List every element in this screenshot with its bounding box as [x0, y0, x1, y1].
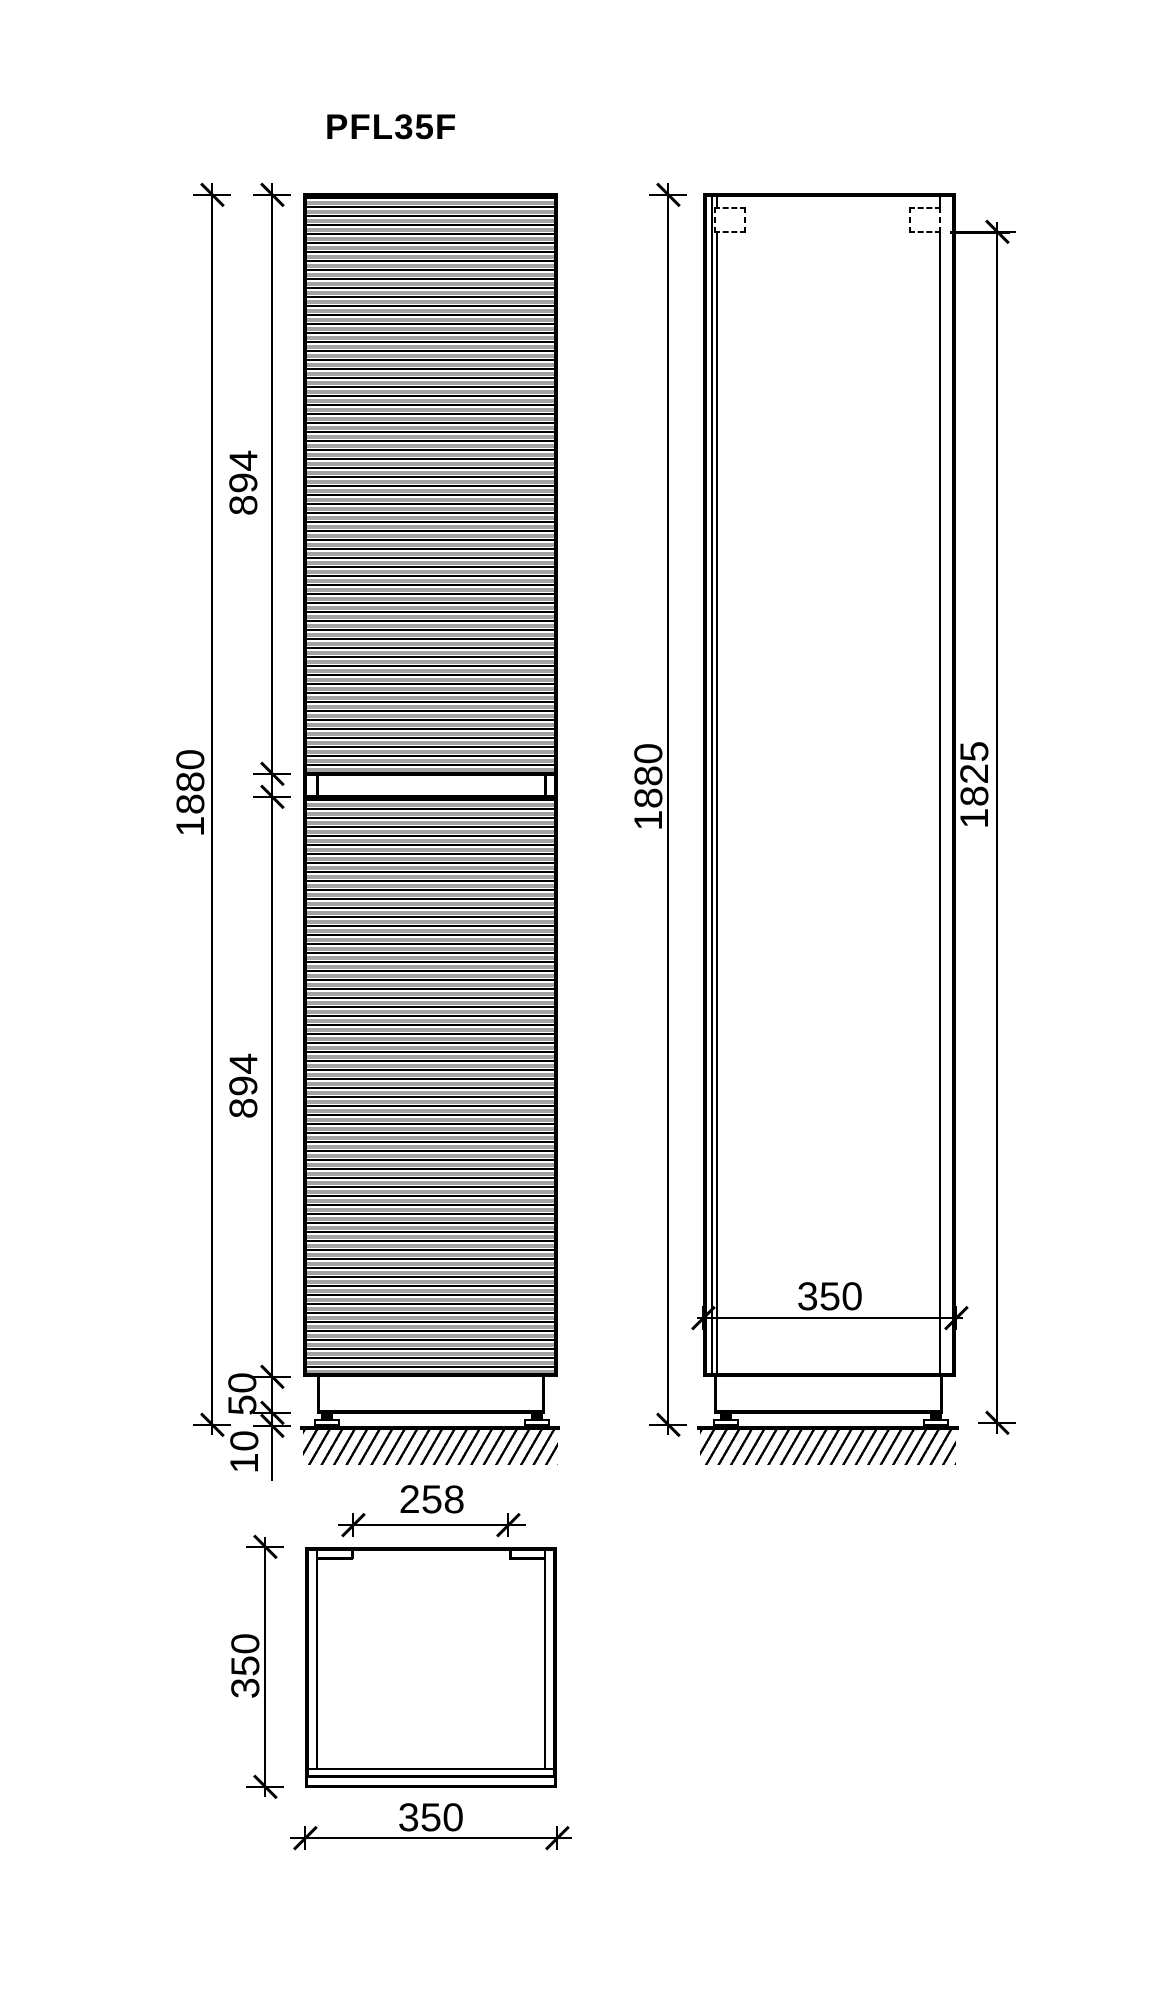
plan-notch-left-side-line — [351, 1551, 354, 1559]
plan-opening-dim-line — [338, 1524, 526, 1526]
front-plinth-bottom-line — [317, 1410, 545, 1414]
side-depth-label: 350 — [797, 1277, 864, 1317]
side-foot-left — [713, 1413, 739, 1426]
front-upper-door-texture — [307, 197, 554, 772]
plan-body-front-line — [309, 1768, 553, 1770]
front-handle-recess-right-line — [544, 776, 547, 795]
front-upper-door-bottom-edge — [303, 772, 558, 776]
plan-width-label: 350 — [398, 1798, 465, 1838]
side-body-front-line — [716, 197, 718, 1373]
front-segments-dim-line — [271, 183, 273, 1481]
side-plinth-right-line — [940, 1377, 943, 1411]
side-plinth-bottom-line — [714, 1410, 943, 1414]
drawing-sheet: PFL35F 1880 894 894 50 10 350 1 — [0, 0, 1150, 2000]
side-foot-right — [923, 1413, 949, 1426]
side-wall-bracket-left — [714, 207, 746, 233]
plan-depth-label: 350 — [226, 1633, 266, 1700]
plan-right-wall-inner-line — [544, 1551, 546, 1769]
front-ground-hatch — [303, 1430, 558, 1465]
side-wall-bracket-right — [909, 207, 941, 233]
model-number: PFL35F — [325, 110, 457, 145]
front-feet-label: 10 — [225, 1430, 265, 1475]
front-foot-left — [314, 1413, 340, 1426]
front-plinth-right-line — [542, 1377, 545, 1411]
plan-notch-right-bottom-line — [509, 1557, 545, 1560]
side-top-edge — [703, 193, 956, 197]
side-door-back-line — [711, 197, 713, 1373]
side-back-inner-line — [939, 197, 941, 1373]
front-lower-door-label: 894 — [224, 1053, 264, 1120]
plan-opening-label: 258 — [399, 1480, 466, 1520]
front-handle-recess-left-line — [316, 776, 319, 795]
front-lower-door-texture — [307, 799, 554, 1373]
side-mount-height-label: 1825 — [955, 741, 995, 830]
front-plinth-label: 50 — [223, 1372, 263, 1417]
side-door-front-edge — [703, 193, 707, 1377]
front-total-height-label: 1880 — [171, 749, 211, 838]
plan-notch-right-side-line — [509, 1551, 512, 1559]
side-plinth-left-line — [714, 1377, 717, 1411]
plan-notch-left-bottom-line — [317, 1557, 353, 1560]
front-upper-door-label: 894 — [224, 450, 264, 517]
plan-left-wall — [305, 1547, 309, 1775]
front-foot-right — [524, 1413, 550, 1426]
plan-door-panel — [305, 1775, 557, 1788]
plan-right-wall — [553, 1547, 557, 1775]
side-ground-hatch — [700, 1430, 956, 1465]
front-plinth-left-line — [317, 1377, 320, 1411]
plan-back-edge — [305, 1547, 557, 1551]
side-bottom-edge — [703, 1373, 956, 1377]
plan-left-wall-inner-line — [316, 1551, 318, 1769]
side-total-height-label: 1880 — [629, 743, 669, 832]
